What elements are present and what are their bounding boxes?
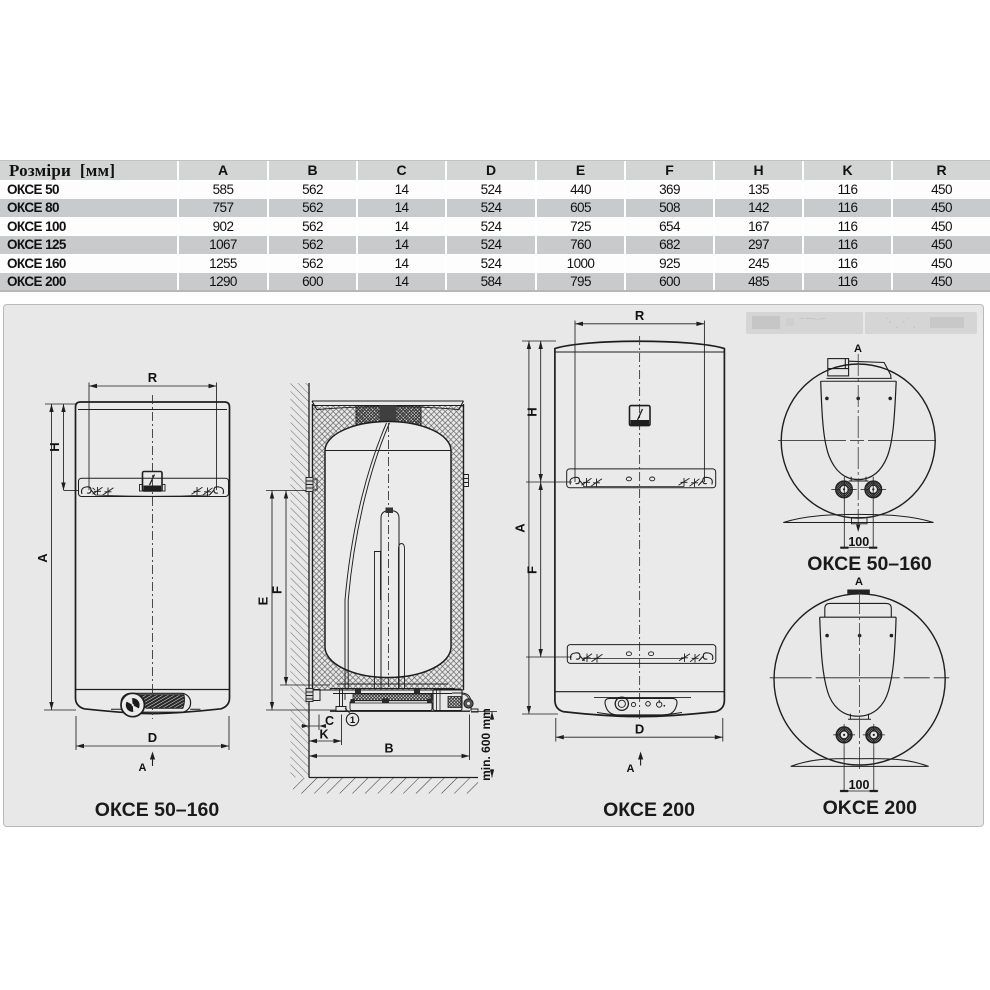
svg-text:E: E [256,596,271,605]
svg-text:A: A [139,762,147,774]
svg-text:H: H [525,407,540,416]
svg-text:ОКСЕ 200: ОКСЕ 200 [603,799,695,821]
svg-text:˙· ¸ ·˙ ¸: ˙· ¸ ·˙ ¸ [885,317,916,329]
svg-text:1: 1 [350,715,356,726]
svg-text:ОКСЕ 50–160: ОКСЕ 50–160 [807,553,932,575]
svg-text:C: C [325,714,334,728]
svg-text:A: A [35,553,50,563]
svg-text:B: B [384,742,393,756]
svg-text:K: K [319,728,328,742]
svg-text:D: D [148,730,157,745]
svg-text:A: A [513,523,528,533]
svg-text:A: A [627,763,635,775]
svg-text:ОКСЕ 50–160: ОКСЕ 50–160 [95,799,220,821]
svg-text:R: R [148,370,158,385]
svg-text:100: 100 [849,778,870,792]
svg-text:H: H [47,442,62,451]
svg-text:A: A [854,343,862,355]
svg-text:A: A [855,576,863,588]
svg-text:F: F [270,586,285,594]
svg-text:D: D [635,722,644,737]
svg-text:100: 100 [848,535,869,549]
svg-text:R: R [635,308,645,323]
svg-text:OKCE 200: OKCE 200 [823,797,917,819]
svg-text:‾ ‾‾˙˙‾: ‾ ‾‾˙˙‾ [799,318,826,330]
svg-text:F: F [525,566,540,574]
svg-text:min. 600 mm: min. 600 mm [479,708,493,781]
